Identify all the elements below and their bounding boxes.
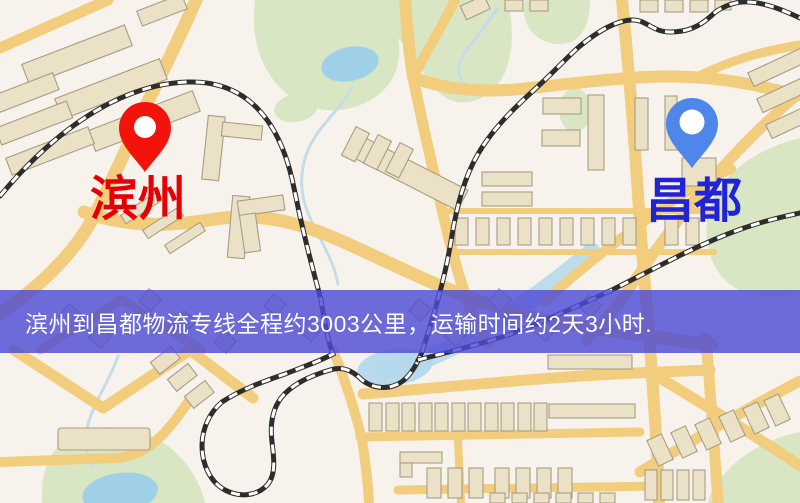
destination-city-label: 昌都 — [646, 178, 742, 226]
origin-city-label: 滨州 — [90, 176, 186, 224]
map-canvas: 滨州 昌都 滨州到昌都物流专线全程约3003公里，运输时间约2天3小时. — [0, 0, 800, 503]
destination-pin-icon — [664, 97, 720, 169]
route-info-text: 滨州到昌都物流专线全程约3003公里，运输时间约2天3小时. — [25, 305, 652, 339]
base-map-image — [0, 0, 800, 503]
origin-pin-icon — [117, 101, 173, 173]
route-info-banner: 滨州到昌都物流专线全程约3003公里，运输时间约2天3小时. — [0, 290, 800, 353]
